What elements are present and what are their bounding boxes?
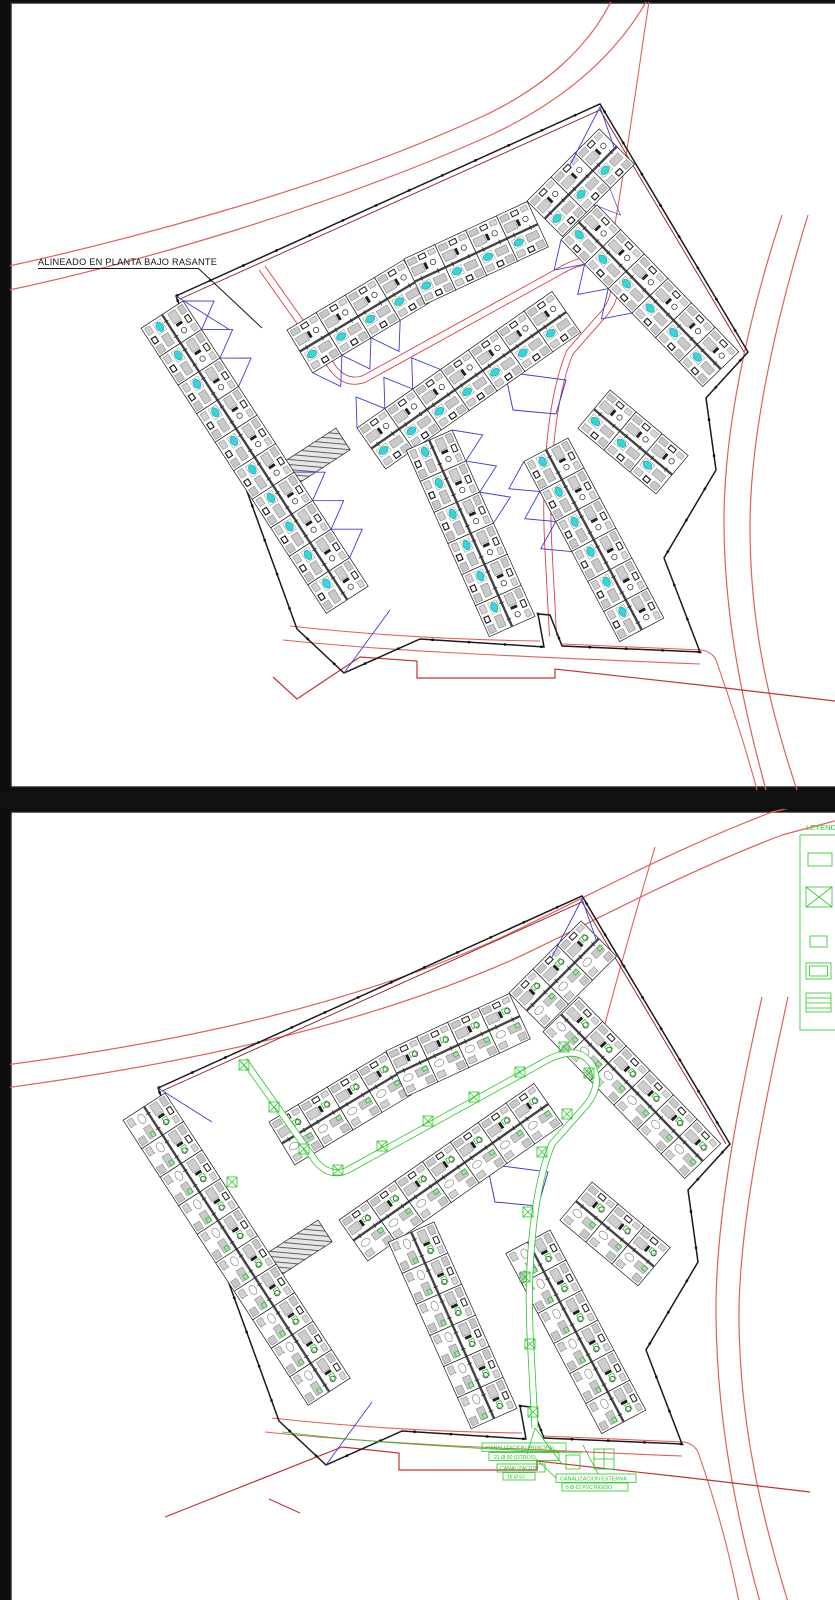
svg-text:CANALIZACION EXTERNA: CANALIZACION EXTERNA bbox=[560, 1477, 627, 1483]
top-margin bbox=[0, 0, 835, 2]
top-sheet: ALINEADO EN PLANTA BAJO RASANTE bbox=[0, 0, 835, 790]
svg-text:21 Ø 50 (OTROS): 21 Ø 50 (OTROS) bbox=[494, 1455, 536, 1461]
sheet-separator bbox=[0, 791, 835, 809]
bottom-sheet: CANALIZACION PRINCIPAL 21 Ø 50 (OTROS) C… bbox=[0, 795, 835, 1600]
legend-title: LEYENDA bbox=[806, 823, 835, 832]
svg-text:16 Ø 63: 16 Ø 63 bbox=[507, 1474, 525, 1480]
svg-text:8 Ø 63 PVC RIGIDO: 8 Ø 63 PVC RIGIDO bbox=[566, 1485, 612, 1491]
svg-text:CANALIZACION PRINCIPAL: CANALIZACION PRINCIPAL bbox=[486, 1446, 555, 1452]
svg-text:CANALIZACION: CANALIZACION bbox=[500, 1466, 539, 1472]
cad-viewport: ALINEADO EN PLANTA BAJO RASANTE bbox=[0, 0, 835, 1600]
annotation-text: ALINEADO EN PLANTA BAJO RASANTE bbox=[38, 257, 217, 267]
